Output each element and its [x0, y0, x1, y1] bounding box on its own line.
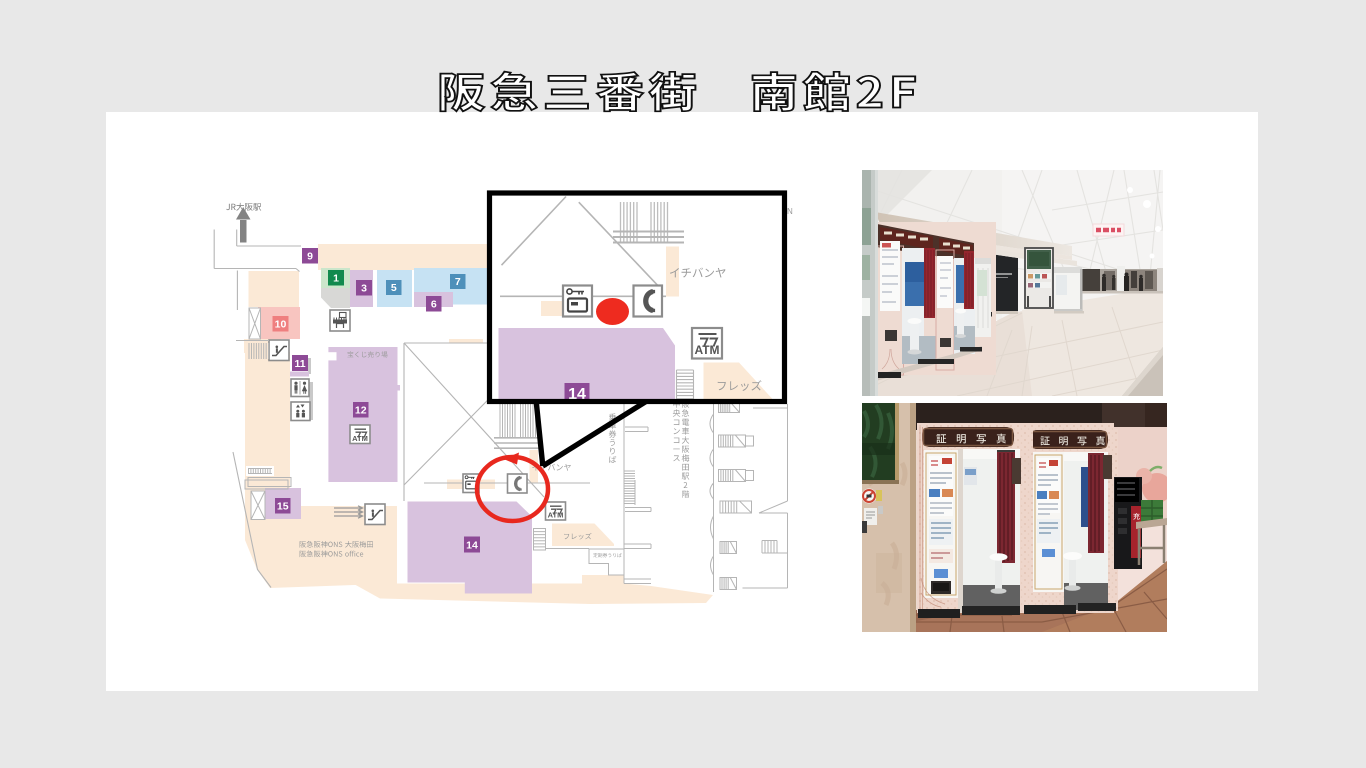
svg-text:14: 14: [466, 540, 478, 552]
svg-text:11: 11: [294, 358, 305, 370]
svg-text:3: 3: [361, 283, 367, 295]
svg-text:6: 6: [431, 299, 437, 311]
svg-text:7: 7: [455, 276, 461, 288]
svg-text:N: N: [787, 207, 793, 216]
svg-text:1: 1: [333, 273, 339, 285]
svg-text:15: 15: [277, 501, 289, 513]
svg-text:ATM: ATM: [352, 434, 368, 443]
svg-text:12: 12: [355, 405, 367, 417]
svg-text:5: 5: [391, 282, 397, 294]
svg-text:ATM: ATM: [548, 511, 564, 520]
svg-text:9: 9: [307, 251, 313, 263]
svg-text:10: 10: [275, 319, 287, 331]
svg-text:ATM: ATM: [694, 343, 719, 357]
